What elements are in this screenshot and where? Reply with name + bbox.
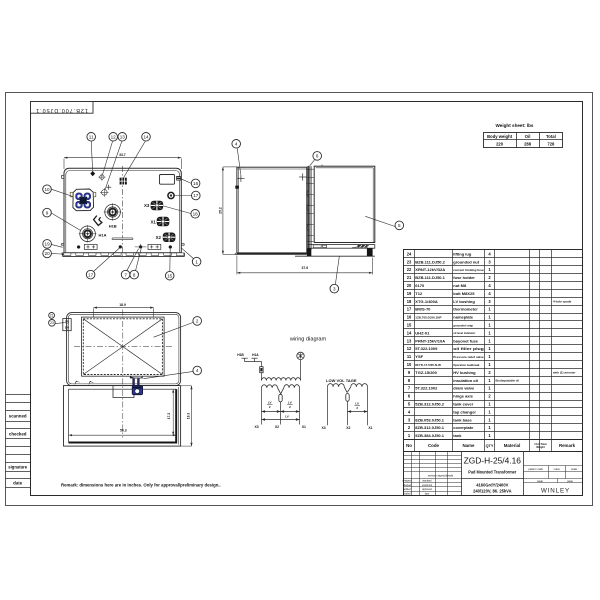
svg-text:23: 23: [50, 321, 54, 325]
svg-text:T12: T12: [415, 291, 423, 296]
svg-text:tank base: tank base: [453, 417, 472, 422]
svg-text:Oil: Oil: [525, 134, 531, 139]
svg-text:11: 11: [89, 134, 94, 139]
svg-text:15: 15: [167, 273, 173, 278]
svg-text:No: No: [406, 443, 412, 448]
svg-text:Pressure relief valve: Pressure relief valve: [453, 355, 484, 359]
svg-text:2: 2: [196, 319, 199, 324]
svg-text:oil filler plug: oil filler plug: [453, 346, 484, 351]
svg-text:220: 220: [496, 142, 504, 147]
svg-text:designed: designed: [402, 480, 412, 482]
svg-text:6170: 6170: [415, 283, 425, 288]
svg-text:fuse holder: fuse holder: [453, 275, 475, 280]
svg-text:5T.322.1002: 5T.322.1002: [415, 386, 438, 391]
svg-text:oil level indicator: oil level indicator: [453, 331, 475, 335]
svg-text:tap changer: tap changer: [453, 409, 476, 414]
svg-text:3: 3: [333, 286, 336, 291]
svg-text:X1: X1: [302, 425, 306, 429]
svg-text:20: 20: [45, 251, 51, 256]
svg-text:LV: LV: [268, 400, 272, 404]
svg-text:Total: Total: [546, 134, 556, 139]
svg-text:21: 21: [407, 275, 412, 280]
svg-text:5: 5: [398, 223, 401, 228]
svg-text:LV: LV: [288, 400, 292, 404]
svg-text:wiring diagram: wiring diagram: [289, 336, 327, 342]
svg-text:240/120V, 86. 25kVA: 240/120V, 86. 25kVA: [473, 489, 512, 494]
svg-text:X1: X1: [151, 219, 157, 224]
svg-text:8FYD-17.5/35-N-W: 8FYD-17.5/35-N-W: [415, 363, 441, 367]
svg-text:BZB.111.DJ50.1: BZB.111.DJ50.1: [415, 275, 445, 280]
svg-text:14: 14: [407, 330, 412, 335]
svg-text:Remark: dimensions here are i: Remark: dimensions here are in inches. O…: [61, 482, 221, 487]
svg-text:ZGD-H-25/4.16: ZGD-H-25/4.16: [464, 455, 522, 465]
svg-text:728: 728: [547, 142, 555, 147]
svg-text:4: 4: [196, 368, 199, 373]
svg-text:BWS-70: BWS-70: [415, 307, 431, 312]
svg-text:page: page: [537, 480, 543, 483]
svg-text:Body weight: Body weight: [487, 134, 512, 139]
svg-text:8ZB.312.0J50.1: 8ZB.312.0J50.1: [415, 425, 444, 430]
svg-text:5T.322.1009: 5T.322.1009: [415, 346, 438, 351]
svg-text:grounded strap: grounded strap: [453, 323, 473, 327]
svg-text:33.7: 33.7: [119, 153, 126, 157]
svg-text:23: 23: [407, 259, 412, 264]
svg-text:5ZB.384.0J50.1: 5ZB.384.0J50.1: [415, 433, 444, 438]
svg-text:approved: approved: [422, 488, 432, 491]
svg-text:56.3: 56.3: [120, 429, 127, 433]
svg-text:Remark: Remark: [559, 443, 576, 448]
svg-text:pattern mark: pattern mark: [528, 467, 543, 471]
svg-text:22: 22: [407, 267, 412, 272]
svg-text:signature: signature: [8, 464, 28, 469]
svg-text:date: date: [425, 492, 430, 495]
svg-text:X3: X3: [255, 425, 259, 429]
svg-text:crafted: crafted: [403, 492, 411, 495]
svg-text:revision dignity/details: revision dignity/details: [428, 474, 454, 478]
svg-text:scanned: scanned: [9, 414, 27, 419]
svg-text:Code: Code: [428, 443, 440, 448]
svg-text:grounded nut: grounded nut: [453, 259, 479, 264]
svg-text:9: 9: [46, 210, 49, 215]
svg-text:25.2: 25.2: [218, 207, 222, 214]
svg-text:standard: standard: [423, 479, 433, 482]
svg-text:date: date: [13, 481, 23, 486]
svg-text:TGZ-15/200: TGZ-15/200: [415, 370, 437, 375]
svg-text:nut M8: nut M8: [453, 283, 467, 288]
svg-text:current limiting fuse: current limiting fuse: [453, 268, 484, 272]
svg-text:10: 10: [407, 362, 412, 367]
svg-text:20: 20: [407, 283, 412, 288]
svg-text:17: 17: [88, 272, 94, 277]
svg-text:16: 16: [193, 181, 199, 186]
svg-text:tank cover: tank cover: [453, 402, 473, 407]
svg-text:X2: X2: [156, 235, 162, 240]
svg-text:19.3: 19.3: [186, 413, 190, 420]
svg-text:insulation oil: insulation oil: [453, 378, 478, 383]
svg-text:18: 18: [193, 211, 199, 216]
svg-text:scale: scale: [571, 467, 578, 471]
svg-text:4-hole spade: 4-hole spade: [553, 300, 572, 304]
svg-text:5ZB.312.0J50.2: 5ZB.312.0J50.2: [415, 402, 444, 407]
svg-text:lifting lug: lifting lug: [453, 251, 472, 256]
svg-text:Name: Name: [463, 443, 476, 448]
svg-text:X2: X2: [346, 426, 350, 430]
svg-text:H1B: H1B: [237, 353, 244, 357]
svg-text:X1: X1: [368, 426, 372, 430]
svg-text:QTY: QTY: [486, 444, 494, 448]
svg-text:13: 13: [120, 134, 126, 139]
svg-text:24: 24: [407, 251, 412, 256]
svg-text:1ZB.700.DJ50.1NP: 1ZB.700.DJ50.1NP: [415, 315, 441, 319]
svg-text:tank: tank: [453, 433, 462, 438]
svg-text:Weight: Weight: [536, 445, 545, 449]
svg-text:UHZ-01: UHZ-01: [415, 330, 430, 335]
svg-text:17.2: 17.2: [167, 413, 171, 420]
svg-text:14: 14: [143, 134, 149, 139]
svg-text:6: 6: [316, 154, 319, 159]
svg-text:37.6: 37.6: [301, 266, 308, 270]
svg-text:Operation loadbreak: Operation loadbreak: [453, 363, 480, 367]
svg-text:bolt M8X25: bolt M8X25: [453, 291, 475, 296]
svg-text:16: 16: [407, 315, 412, 320]
svg-text:nameplate: nameplate: [453, 315, 474, 320]
svg-text:12: 12: [407, 346, 412, 351]
svg-text:checked: checked: [9, 431, 27, 436]
svg-text:1: 1: [195, 259, 198, 264]
svg-text:X3: X3: [144, 203, 150, 208]
svg-text:10: 10: [44, 187, 50, 192]
svg-text:WINLEY: WINLEY: [541, 488, 570, 495]
svg-text:thermometer: thermometer: [453, 307, 478, 312]
svg-text:BZB.111.DJ50.2: BZB.111.DJ50.2: [415, 259, 445, 264]
svg-text:PRNT-15kV/10A: PRNT-15kV/10A: [415, 338, 445, 343]
svg-text:X2: X2: [275, 425, 279, 429]
svg-text:19: 19: [45, 242, 51, 247]
svg-text:Biodegradable oil: Biodegradable oil: [496, 379, 520, 383]
svg-text:7: 7: [124, 272, 127, 277]
svg-text:X3: X3: [322, 426, 326, 430]
svg-text:XTG-1/400A: XTG-1/400A: [415, 299, 438, 304]
svg-text:13: 13: [407, 338, 412, 343]
svg-text:coverplate: coverplate: [453, 425, 474, 430]
svg-text:19: 19: [407, 291, 412, 296]
svg-text:LV: LV: [285, 415, 289, 419]
svg-text:YSF: YSF: [415, 354, 423, 359]
svg-text:4: 4: [235, 141, 238, 146]
svg-text:LV bushing: LV bushing: [453, 299, 475, 304]
svg-text:audited: audited: [403, 488, 411, 491]
svg-text:17: 17: [193, 193, 199, 198]
svg-text:hinge axis: hinge axis: [453, 394, 473, 399]
svg-text:11: 11: [407, 354, 412, 359]
svg-text:8ZB.053.0J50.1: 8ZB.053.0J50.1: [415, 417, 444, 422]
svg-text:page: page: [567, 480, 573, 483]
svg-text:XRNT-12kV/32A: XRNT-12kV/32A: [415, 267, 445, 272]
svg-text:17: 17: [407, 307, 412, 312]
svg-text:18.9: 18.9: [119, 303, 126, 307]
svg-text:H1A: H1A: [252, 353, 259, 357]
svg-text:15: 15: [407, 323, 412, 328]
svg-text:12: 12: [111, 134, 117, 139]
svg-text:LV: LV: [355, 402, 359, 406]
svg-text:18: 18: [407, 299, 412, 304]
svg-text:H1B: H1B: [109, 223, 117, 228]
svg-text:Pad Mounted Transformer: Pad Mounted Transformer: [468, 470, 516, 475]
svg-text:21: 21: [50, 314, 54, 318]
svg-text:Material: Material: [504, 443, 521, 448]
svg-text:12B.700.DJ50.1: 12B.700.DJ50.1: [35, 107, 88, 113]
svg-text:mass: mass: [554, 468, 561, 471]
svg-text:HV bushing: HV bushing: [453, 370, 476, 375]
svg-text:bayonet fuse: bayonet fuse: [453, 338, 478, 343]
svg-text:checked: checked: [403, 485, 412, 487]
svg-text:examined: examined: [422, 485, 433, 487]
svg-text:Weight sheet: lbs: Weight sheet: lbs: [496, 123, 534, 128]
svg-text:H1A: H1A: [98, 233, 106, 238]
svg-text:LOW VOL TAGE: LOW VOL TAGE: [326, 378, 357, 383]
svg-text:drain valve: drain valve: [453, 386, 475, 391]
svg-text:with (1) arrester: with (1) arrester: [552, 371, 576, 375]
svg-text:288: 288: [524, 142, 532, 147]
svg-text:8: 8: [133, 272, 136, 277]
svg-text:4160GrdY/2400V: 4160GrdY/2400V: [476, 482, 508, 487]
